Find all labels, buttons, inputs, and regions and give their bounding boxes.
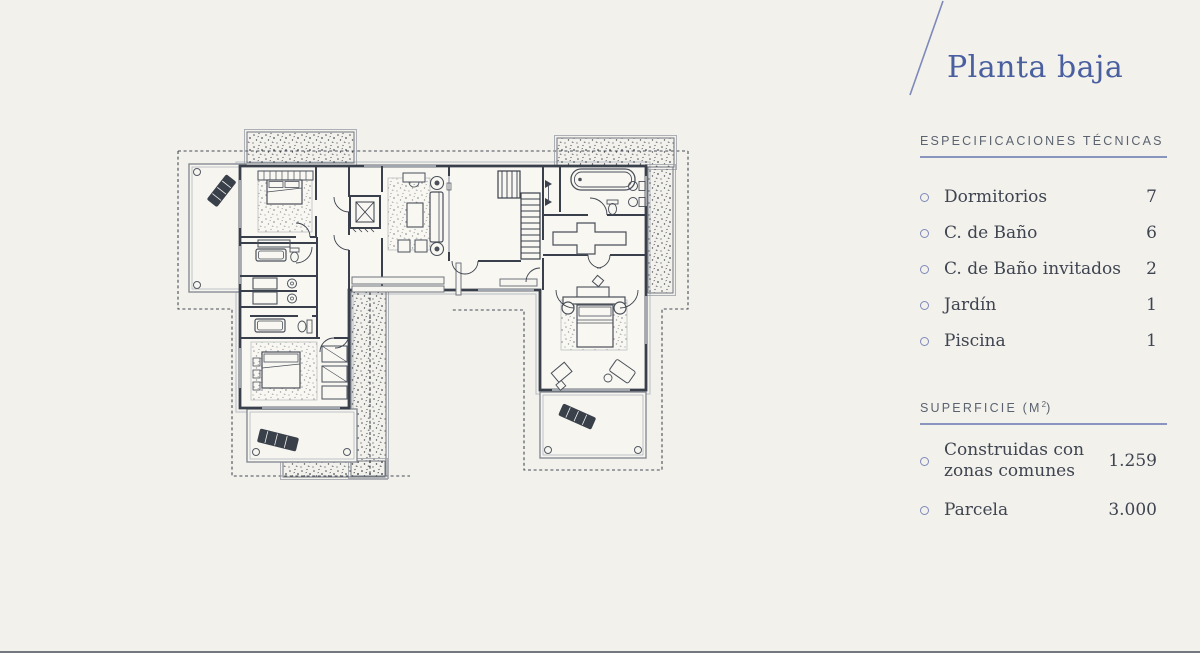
surface-header: SUPERFICIE (M2) [920,400,1167,415]
specs-list: Dormitorios 7 C. de Baño 6 C. de Baño in… [920,179,1167,359]
specs-divider [920,156,1167,158]
spec-item-banos: C. de Baño 6 [920,215,1167,251]
surface-divider [920,423,1167,425]
spec-item-dormitorios: Dormitorios 7 [920,179,1167,215]
circle-bullet-icon [920,265,929,274]
circle-bullet-icon [920,229,929,238]
surface-list: Construidas conzonas comunes 1.259 Parce… [920,435,1167,533]
page-title: Planta baja [947,50,1123,85]
circle-bullet-icon [920,193,929,202]
terrace-bottom-left [247,409,357,462]
surface-section: SUPERFICIE (M2) Construidas conzonas com… [920,400,1167,533]
surface-item-construidas: Construidas conzonas comunes 1.259 [920,435,1167,487]
circle-bullet-icon [920,506,929,515]
spec-item-jardin: Jardín 1 [920,287,1167,323]
garden-bed-top-left [245,130,357,166]
specs-section: ESPECIFICACIONES TÉCNICAS Dormitorios 7 … [920,134,1167,359]
spec-item-piscina: Piscina 1 [920,323,1167,359]
specs-header: ESPECIFICACIONES TÉCNICAS [920,134,1167,148]
terrace-top-left [189,164,246,292]
surface-item-parcela: Parcela 3.000 [920,487,1167,533]
circle-bullet-icon [920,457,929,466]
ground-floor-plan [0,0,920,653]
circle-bullet-icon [920,337,929,346]
garden-bed-right-strip [646,165,676,296]
bedroom-top-left [258,171,313,232]
page: Planta baja ESPECIFICACIONES TÉCNICAS Do… [0,0,1200,653]
spec-item-banos-invitados: C. de Baño invitados 2 [920,251,1167,287]
circle-bullet-icon [920,301,929,310]
info-panel: Planta baja ESPECIFICACIONES TÉCNICAS Do… [900,0,1200,653]
terrace-bottom-right [540,392,646,458]
